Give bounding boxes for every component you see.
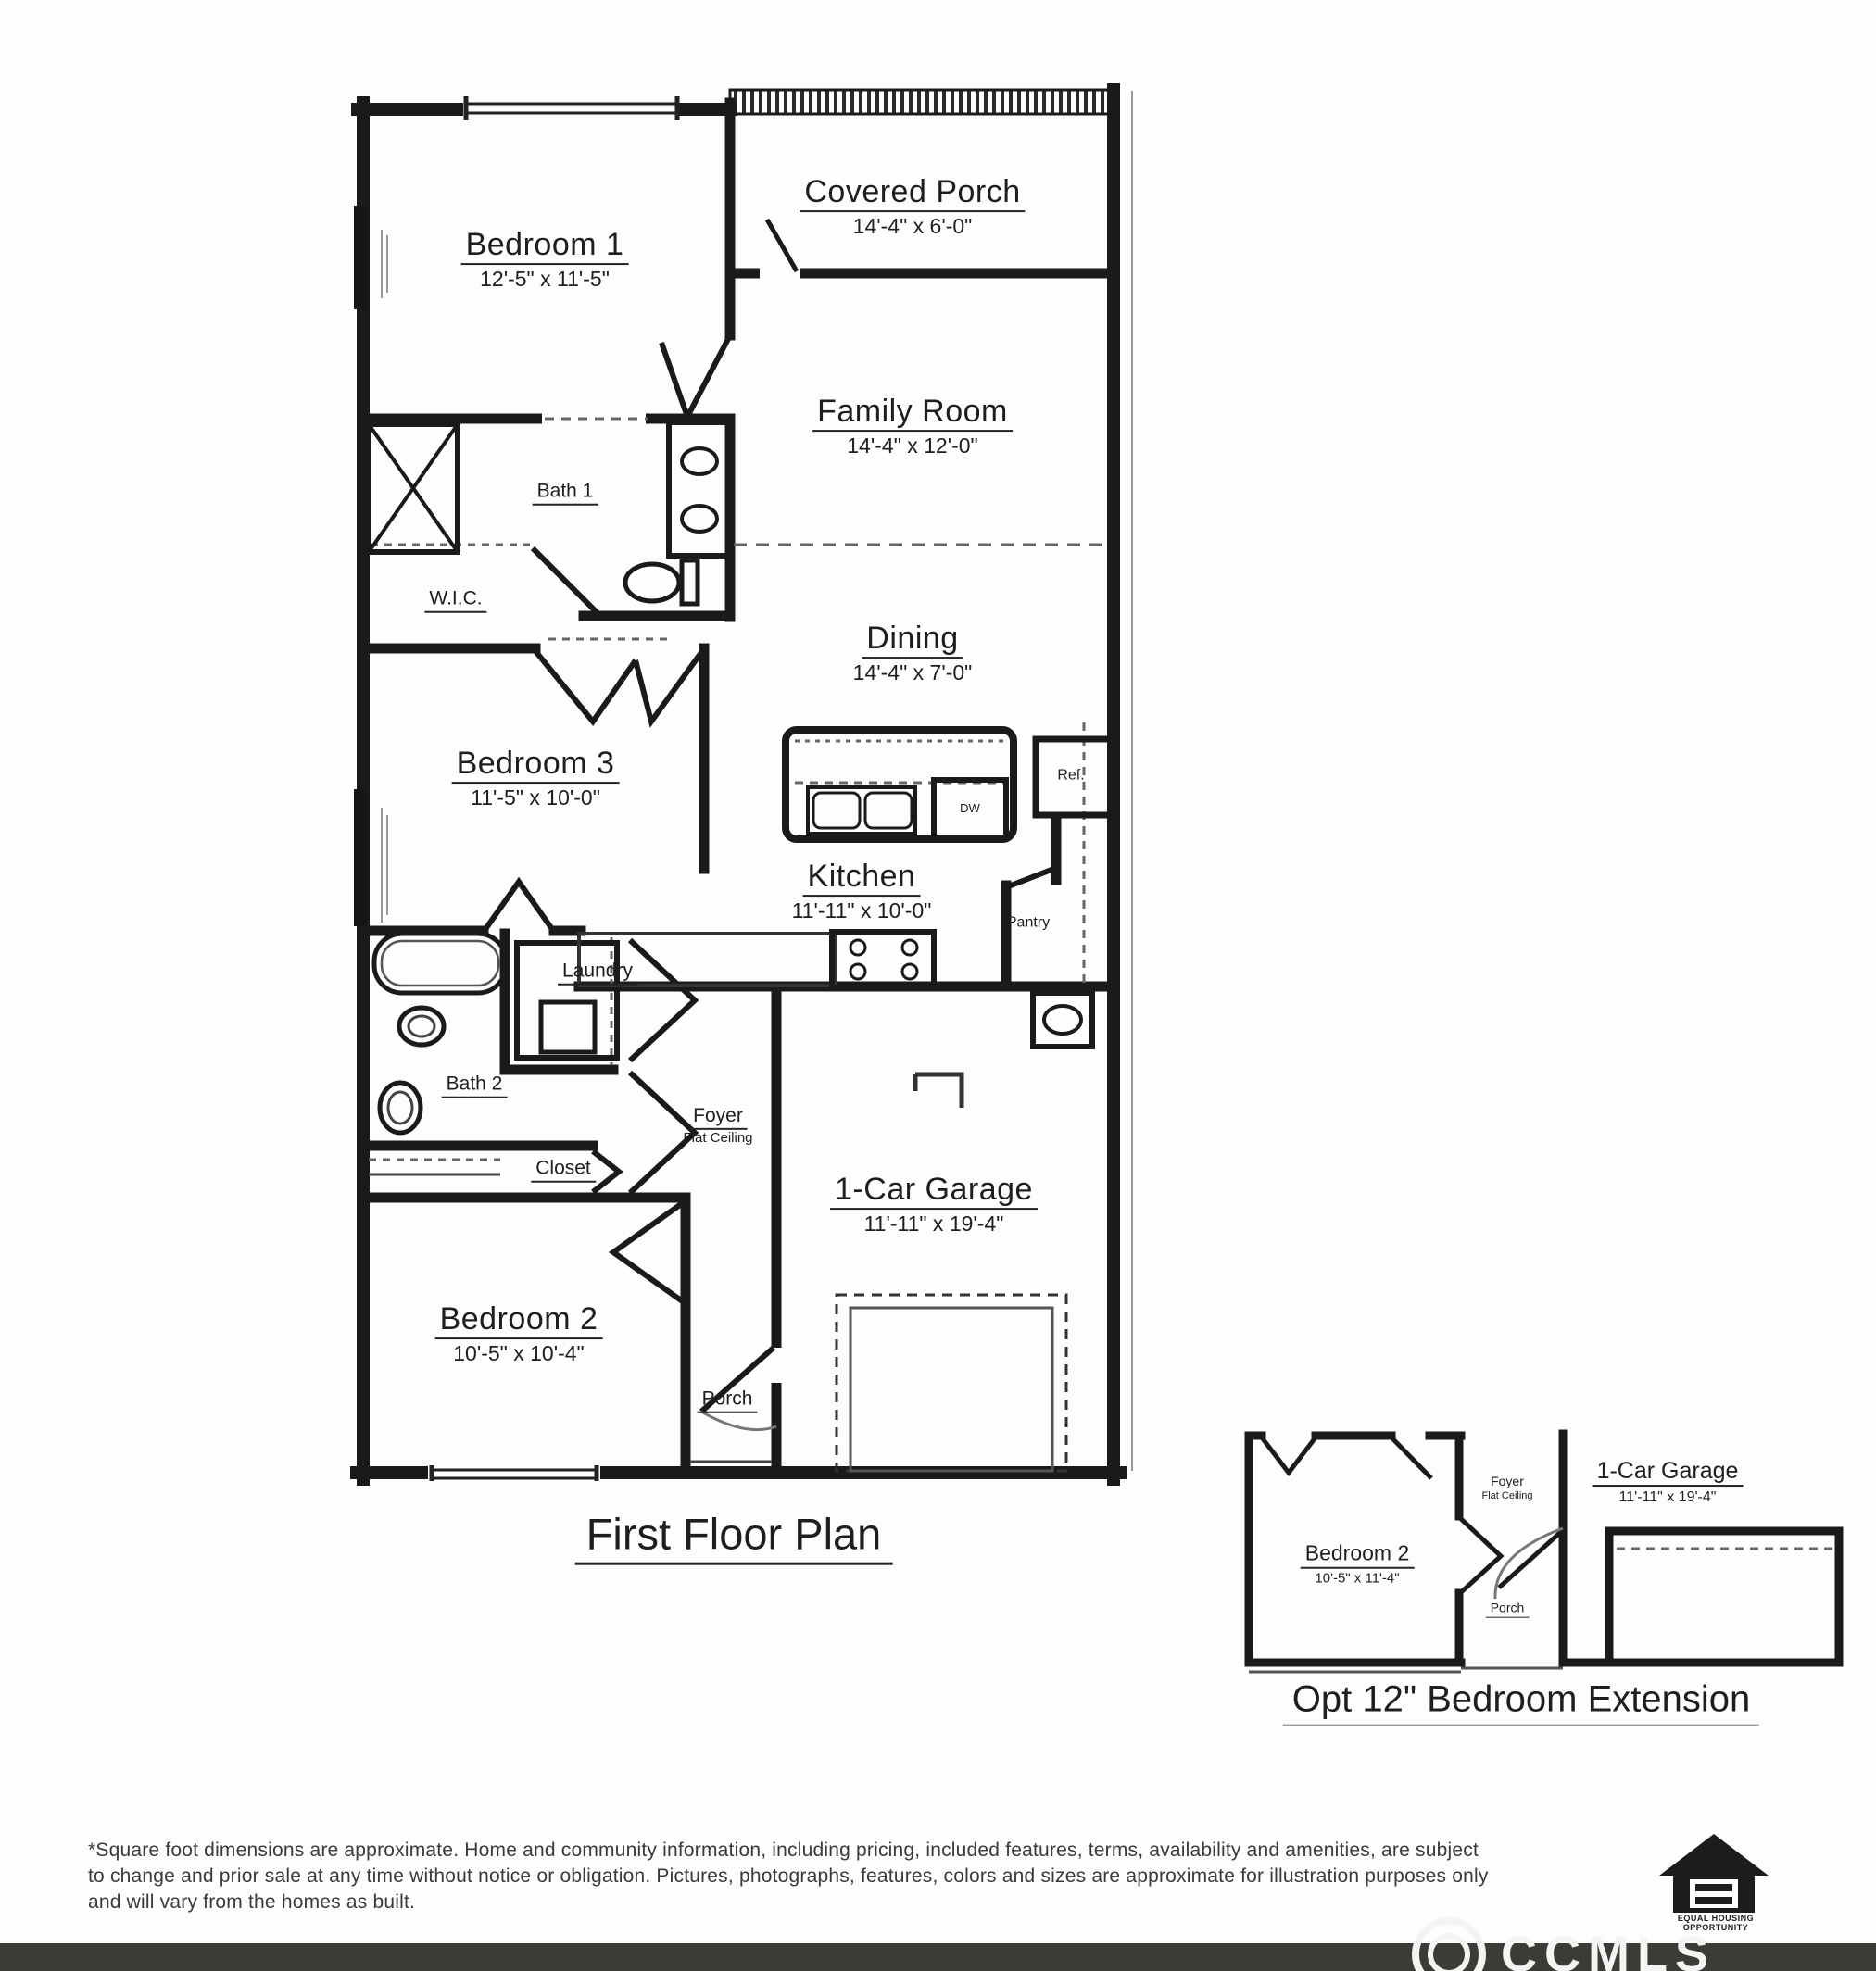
room-dims: 11'-5" x 10'-0": [452, 786, 620, 810]
stove-icon: [832, 932, 934, 987]
sink-icon: [380, 1083, 421, 1133]
room-name: Laundry: [558, 960, 637, 985]
room-label-family-room: Family Room 14'-4" x 12'-0": [812, 394, 1013, 458]
room-name: Porch: [698, 1388, 758, 1413]
room-name: Bath 2: [442, 1073, 508, 1098]
room-name: Dining: [862, 621, 963, 659]
room-dims: 11'-11" x 19'-4": [830, 1212, 1038, 1237]
room-name: Bath 1: [533, 481, 598, 506]
room-name: Foyer: [1486, 1475, 1529, 1490]
room-dims: 14'-4" x 12'-0": [812, 434, 1013, 458]
room-label-bedroom2: Bedroom 2 10'-5" x 10'-4": [435, 1301, 603, 1366]
room-dims: 11'-11" x 19'-4": [1593, 1489, 1744, 1506]
disclaimer-line: to change and prior sale at any time wit…: [88, 1864, 1607, 1889]
room-subtitle: Flat Ceiling: [1481, 1490, 1532, 1501]
room-label-bath2: Bath 2: [442, 1073, 508, 1098]
opt-room-label-bedroom2: Bedroom 2 10'-5" x 11'-4": [1301, 1542, 1415, 1588]
room-label-bedroom3: Bedroom 3 11'-5" x 10'-0": [452, 746, 620, 810]
room-label-garage: 1-Car Garage 11'-11" x 19'-4": [830, 1172, 1038, 1237]
room-name: Bedroom 2: [1301, 1542, 1415, 1569]
watermark-text: CCMLS: [1501, 1927, 1716, 1971]
disclaimer-text: *Square foot dimensions are approximate.…: [88, 1838, 1607, 1915]
room-name: Bedroom 2: [435, 1301, 603, 1339]
opt-room-label-porch: Porch: [1486, 1601, 1530, 1618]
option-plan-floor-lines: [1249, 1668, 1563, 1672]
room-name: Bedroom 1: [461, 227, 629, 265]
garage-door-panel: [850, 1308, 1052, 1471]
option-plan-title: Opt 12" Bedroom Extension: [1283, 1679, 1759, 1726]
room-subtitle: Flat Ceiling: [683, 1130, 752, 1146]
room-name: Foyer: [688, 1105, 748, 1130]
room-label-laundry: Laundry: [558, 960, 637, 985]
room-name: 1-Car Garage: [830, 1172, 1038, 1210]
room-name: Closet: [531, 1158, 596, 1183]
room-name: W.I.C.: [424, 588, 486, 613]
disclaimer-line: and will vary from the homes as built.: [88, 1889, 1607, 1915]
room-label-bath1: Bath 1: [533, 481, 598, 506]
vanity-icon: [669, 422, 730, 556]
room-name: Bedroom 3: [452, 746, 620, 784]
floorplan-drawing: [0, 0, 1876, 1971]
room-name: Family Room: [812, 394, 1013, 432]
room-name: Kitchen: [803, 859, 921, 897]
room-dims: 14'-4" x 7'-0": [853, 661, 973, 685]
water-heater-platform: [915, 1074, 962, 1108]
room-label-covered-porch: Covered Porch 14'-4" x 6'-0": [800, 174, 1025, 239]
room-label-closet: Closet: [531, 1158, 596, 1183]
room-dims: 10'-5" x 11'-4": [1301, 1571, 1415, 1587]
room-dims: 12'-5" x 11'-5": [461, 268, 629, 292]
room-dims: 10'-5" x 10'-4": [435, 1342, 603, 1366]
opt-room-label-garage: 1-Car Garage 11'-11" x 19'-4": [1593, 1458, 1744, 1506]
fixture-name: Ref.: [1052, 768, 1089, 785]
room-label-foyer: Foyer Flat Ceiling: [683, 1105, 752, 1146]
label-dishwasher: DW: [955, 800, 985, 817]
toilet-icon: [625, 564, 679, 601]
room-dims: 11'-11" x 10'-0": [792, 899, 932, 923]
equal-housing-logo-icon: [1659, 1834, 1769, 1913]
fixture-name: DW: [955, 802, 985, 817]
room-label-kitchen: Kitchen 11'-11" x 10'-0": [792, 859, 932, 923]
room-label-bedroom1: Bedroom 1 12'-5" x 11'-5": [461, 227, 629, 292]
label-pantry: Pantry: [1002, 915, 1054, 933]
room-label-porch: Porch: [698, 1388, 758, 1413]
room-name: Pantry: [1002, 915, 1054, 933]
kitchen-island: [786, 730, 1014, 839]
mls-watermark-logo-icon: CCMLS: [1408, 1904, 1876, 1971]
room-name: 1-Car Garage: [1593, 1458, 1744, 1487]
floorplan-page: Covered Porch 14'-4" x 6'-0" Bedroom 1 1…: [0, 0, 1876, 1971]
room-label-dining: Dining 14'-4" x 7'-0": [853, 621, 973, 685]
toilet-icon: [399, 1008, 444, 1045]
garage-door-dashed: [837, 1295, 1066, 1471]
plan-title: First Floor Plan: [575, 1511, 893, 1565]
label-refrigerator: Ref.: [1052, 768, 1089, 785]
porch-screen-wall: [730, 90, 1114, 114]
room-name: Covered Porch: [800, 174, 1025, 212]
room-dims: 14'-4" x 6'-0": [800, 215, 1025, 239]
disclaimer-line: *Square foot dimensions are approximate.…: [88, 1838, 1607, 1864]
opt-room-label-foyer: Foyer Flat Ceiling: [1481, 1474, 1532, 1501]
room-name: Porch: [1486, 1601, 1530, 1618]
room-label-wic: W.I.C.: [424, 588, 486, 613]
door-arc: [701, 1412, 776, 1430]
bath1-fixtures: [369, 422, 730, 604]
utility-sink-icon: [1033, 993, 1092, 1047]
